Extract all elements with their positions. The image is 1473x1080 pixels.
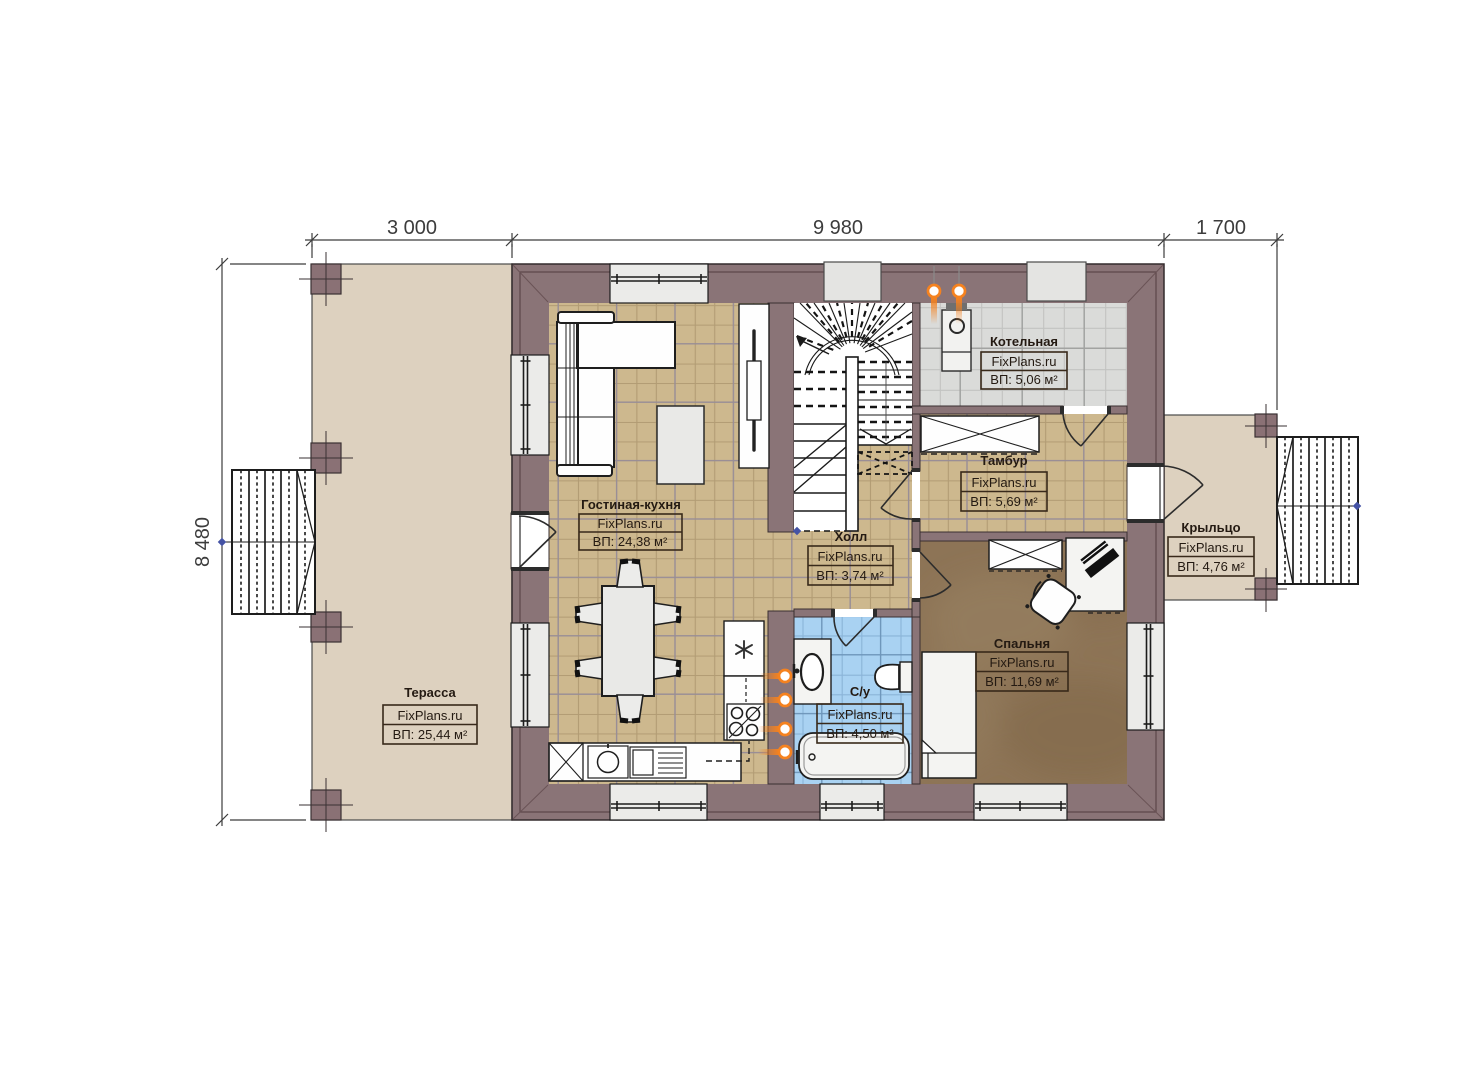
svg-text:С/у: С/у [850,684,871,699]
svg-text:Терасса: Терасса [404,685,456,700]
svg-text:FixPlans.ru: FixPlans.ru [827,707,892,722]
svg-text:9 980: 9 980 [813,217,863,239]
svg-text:ВП: 25,44 м²: ВП: 25,44 м² [393,727,468,742]
svg-text:Спальня: Спальня [994,636,1050,651]
svg-text:FixPlans.ru: FixPlans.ru [989,655,1054,670]
svg-text:1 700: 1 700 [1196,217,1246,239]
svg-text:FixPlans.ru: FixPlans.ru [991,354,1056,369]
svg-text:Крыльцо: Крыльцо [1181,520,1240,535]
svg-text:Холл: Холл [835,529,868,544]
svg-text:FixPlans.ru: FixPlans.ru [1178,540,1243,555]
svg-text:ВП: 5,06 м²: ВП: 5,06 м² [990,372,1058,387]
svg-text:3 000: 3 000 [387,217,437,239]
svg-text:ВП: 5,69 м²: ВП: 5,69 м² [970,494,1038,509]
svg-text:ВП: 24,38 м²: ВП: 24,38 м² [593,534,668,549]
svg-text:ВП: 4,50 м²: ВП: 4,50 м² [826,726,894,741]
svg-text:8 480: 8 480 [192,517,214,567]
svg-text:FixPlans.ru: FixPlans.ru [817,549,882,564]
svg-text:ВП: 11,69 м²: ВП: 11,69 м² [985,674,1059,689]
svg-text:Котельная: Котельная [990,334,1058,349]
svg-text:FixPlans.ru: FixPlans.ru [597,516,662,531]
svg-text:ВП: 4,76 м²: ВП: 4,76 м² [1177,559,1245,574]
svg-text:FixPlans.ru: FixPlans.ru [397,708,462,723]
svg-text:ВП: 3,74 м²: ВП: 3,74 м² [816,568,884,583]
svg-text:Гостиная-кухня: Гостиная-кухня [581,497,681,512]
svg-text:Тамбур: Тамбур [980,453,1027,468]
svg-text:FixPlans.ru: FixPlans.ru [971,475,1036,490]
